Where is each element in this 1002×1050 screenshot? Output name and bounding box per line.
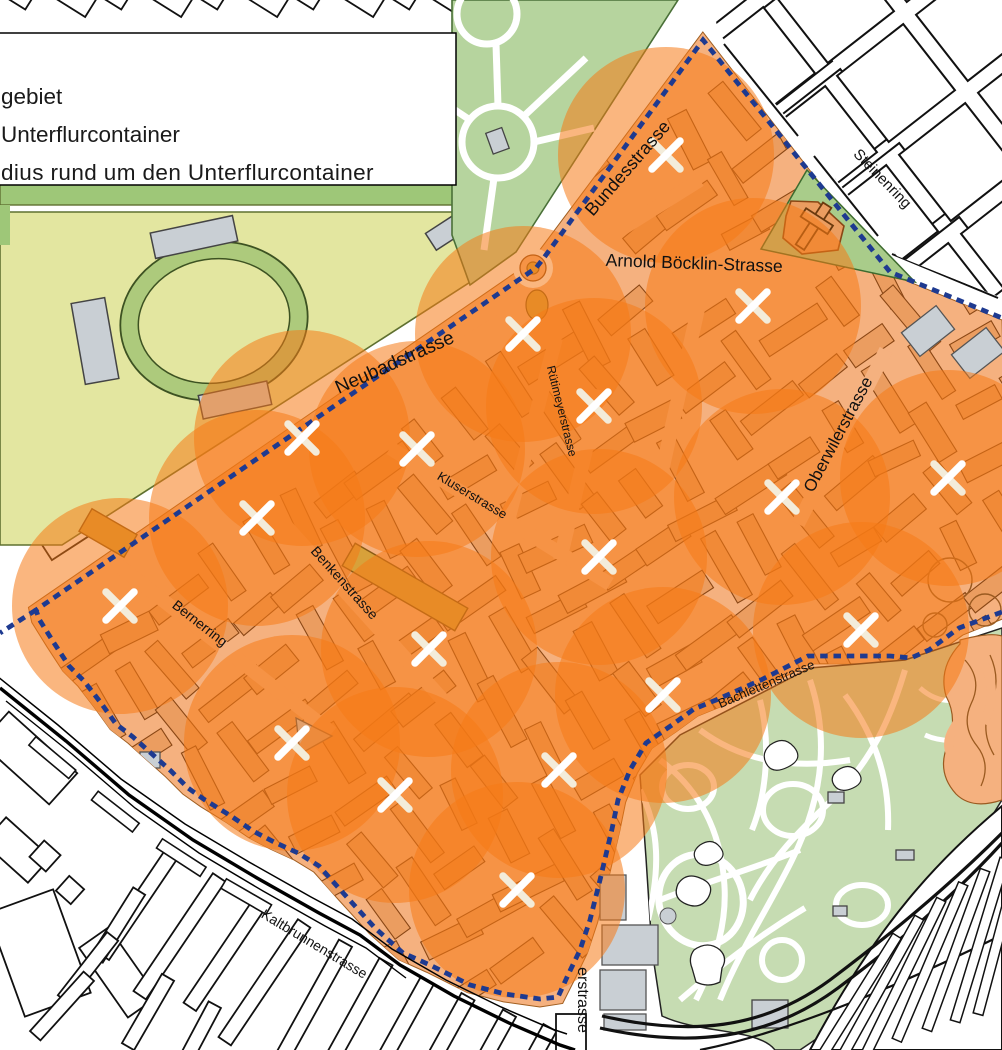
svg-text:gebiet: gebiet: [1, 84, 63, 109]
svg-text:dius rund um den Unterflurcont: dius rund um den Unterflurcontainer: [1, 160, 374, 185]
svg-text:erstrasse: erstrasse: [574, 967, 591, 1033]
svg-text:Unterflurcontainer: Unterflurcontainer: [1, 122, 180, 147]
